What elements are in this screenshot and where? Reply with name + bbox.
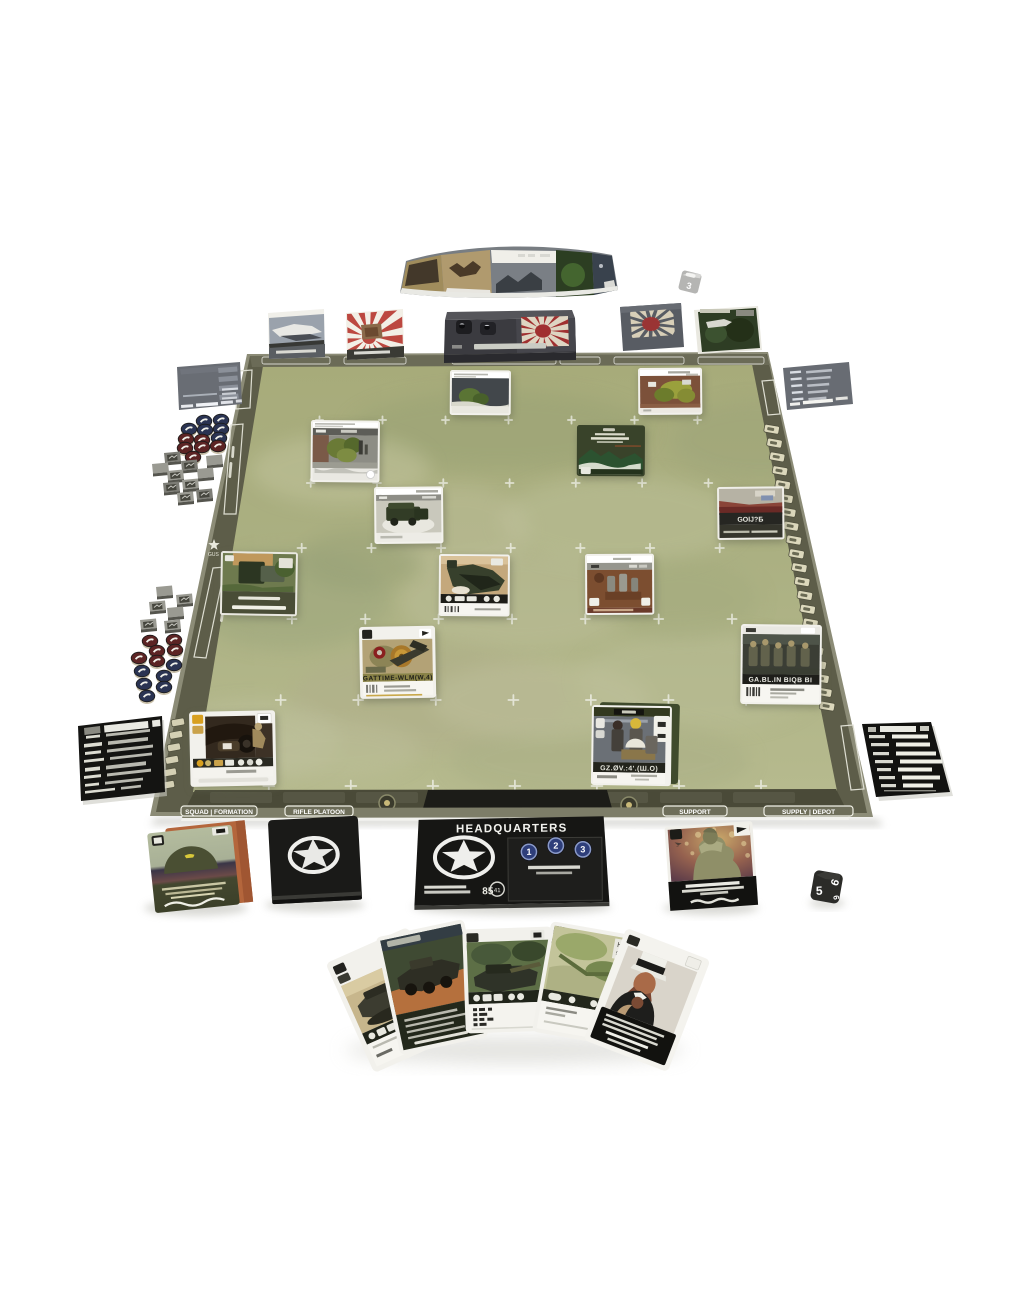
svg-text:GZ.ØV.:4'.(Ш.О): GZ.ØV.:4'.(Ш.О) <box>600 765 658 773</box>
svg-text:41: 41 <box>494 888 501 894</box>
svg-text:2: 2 <box>553 841 558 851</box>
svg-text:GA.BL.IN BIQB BI: GA.BL.IN BIQB BI <box>748 677 812 685</box>
svg-text:RIFLE PLATOON: RIFLE PLATOON <box>293 809 345 816</box>
svg-text:SUPPLY | DEPOT: SUPPLY | DEPOT <box>782 809 835 816</box>
svg-text:3: 3 <box>580 844 585 854</box>
svg-text:HEADQUARTERS: HEADQUARTERS <box>456 823 568 836</box>
svg-text:85: 85 <box>482 886 494 897</box>
svg-text:5: 5 <box>816 884 823 898</box>
svg-text:GUS: GUS <box>208 552 220 558</box>
svg-text:SQUAD | FORMATION: SQUAD | FORMATION <box>185 809 253 816</box>
svg-text:1: 1 <box>526 847 531 857</box>
svg-text:SUPPORT: SUPPORT <box>679 809 710 816</box>
svg-text:GOIJ?Б: GOIJ?Б <box>737 517 763 524</box>
